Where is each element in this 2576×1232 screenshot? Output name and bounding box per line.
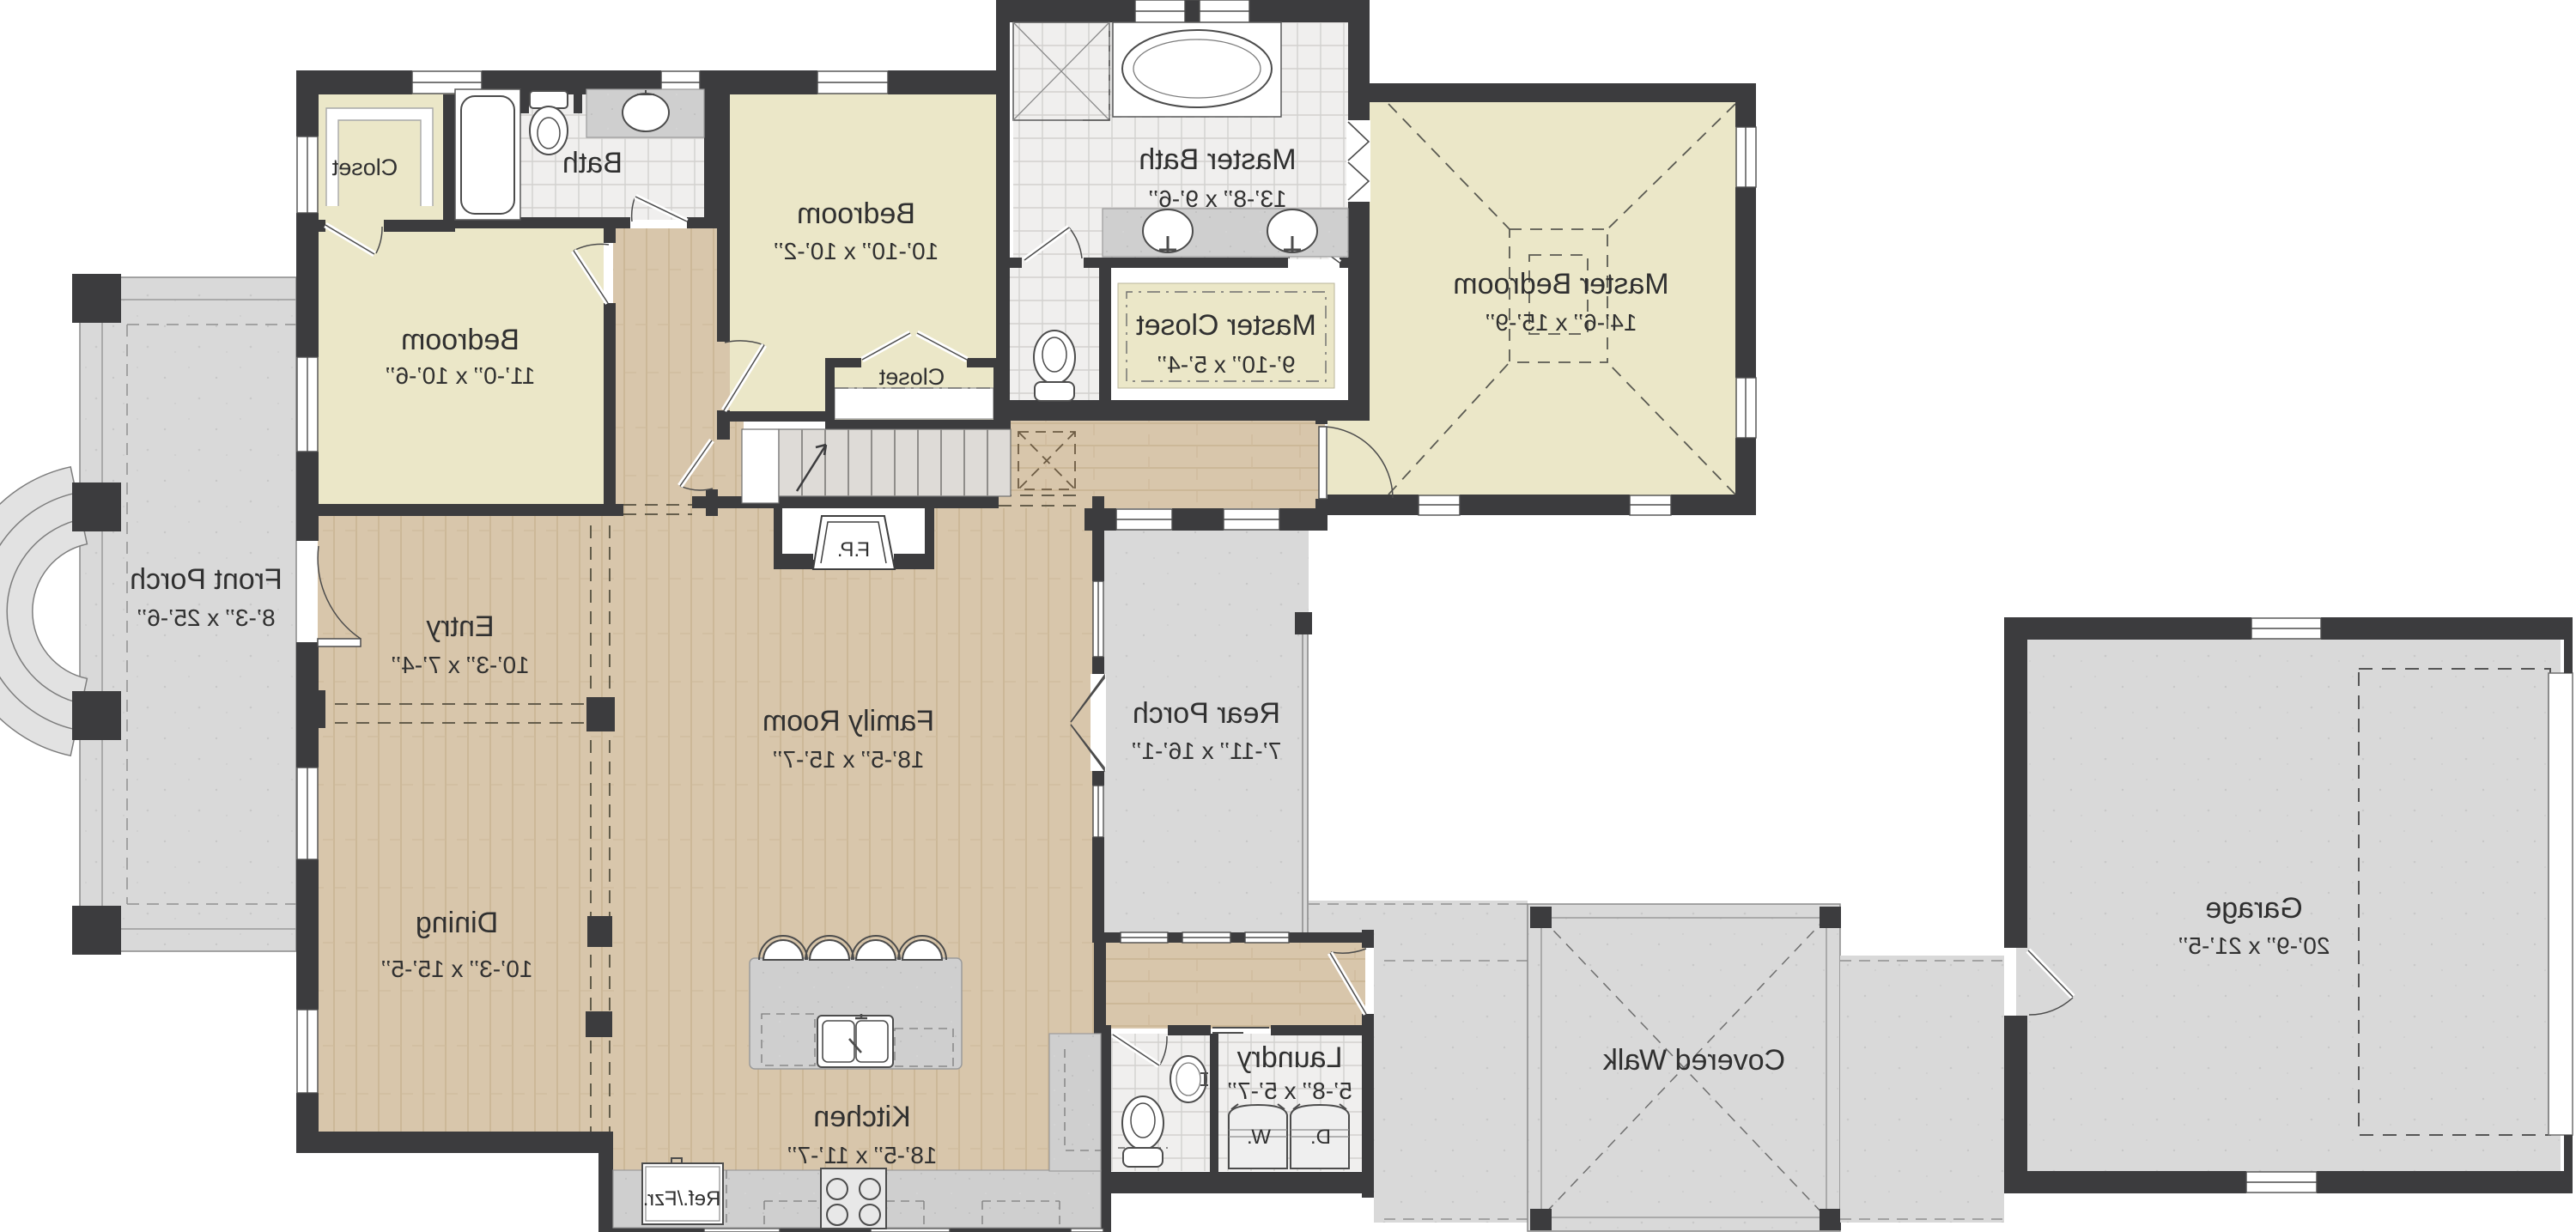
svg-text:Kitchen: Kitchen xyxy=(813,1101,910,1133)
svg-text:9’-10’’ x 5’-4’’: 9’-10’’ x 5’-4’’ xyxy=(1157,351,1295,378)
svg-text:13’-8’’ x 9’-6’’: 13’-8’’ x 9’-6’’ xyxy=(1148,185,1286,212)
svg-text:Closet: Closet xyxy=(878,364,945,390)
svg-text:Master Closet: Master Closet xyxy=(1136,309,1316,342)
svg-text:10’-3’’ x 7’-4’’: 10’-3’’ x 7’-4’’ xyxy=(391,652,529,678)
svg-text:11’-0’’ x 10’-6’’: 11’-0’’ x 10’-6’’ xyxy=(386,362,536,389)
svg-text:D.: D. xyxy=(1310,1126,1331,1149)
svg-text:20’-9’’ x 21’-5’’: 20’-9’’ x 21’-5’’ xyxy=(2178,932,2330,959)
svg-text:Master Bath: Master Bath xyxy=(1139,143,1296,176)
svg-text:W.: W. xyxy=(1247,1126,1271,1149)
svg-text:Front Porch: Front Porch xyxy=(130,563,283,596)
svg-text:Rear Porch: Rear Porch xyxy=(1133,697,1280,730)
svg-text:Bedroom: Bedroom xyxy=(797,197,915,230)
svg-text:Closet: Closet xyxy=(331,155,398,180)
svg-text:F.P.: F.P. xyxy=(837,538,870,561)
svg-text:18’-5’’ x 15’-7’’: 18’-5’’ x 15’-7’’ xyxy=(773,746,925,773)
svg-text:10’-3’’ x 15’-5’’: 10’-3’’ x 15’-5’’ xyxy=(381,956,533,982)
svg-text:7’-11’’ x 16’-1’’: 7’-11’’ x 16’-1’’ xyxy=(1132,737,1282,764)
svg-text:Master Bedroom: Master Bedroom xyxy=(1453,268,1668,300)
svg-text:5’-8’’ x 5’-7’’: 5’-8’’ x 5’-7’’ xyxy=(1227,1077,1352,1104)
svg-text:14’-6’’ x 15’-9’’: 14’-6’’ x 15’-9’’ xyxy=(1485,309,1637,336)
svg-text:Laundry: Laundry xyxy=(1237,1041,1343,1074)
svg-text:Bedroom: Bedroom xyxy=(401,324,519,356)
svg-text:Covered Walk: Covered Walk xyxy=(1602,1044,1785,1077)
svg-text:Entry: Entry xyxy=(426,610,494,643)
svg-text:Dining: Dining xyxy=(416,907,498,939)
svg-text:Bath: Bath xyxy=(562,147,623,179)
svg-text:8’-3’’ x 25’-6’’: 8’-3’’ x 25’-6’’ xyxy=(137,604,275,631)
svg-text:Family Room: Family Room xyxy=(762,705,934,737)
svg-text:18’-5’’ x 11’-7’’: 18’-5’’ x 11’-7’’ xyxy=(787,1142,938,1168)
svg-text:Garage: Garage xyxy=(2205,892,2302,925)
svg-text:10’-10’’ x 10’-2’’: 10’-10’’ x 10’-2’’ xyxy=(774,238,939,264)
svg-text:Ref./Fzr.: Ref./Fzr. xyxy=(643,1187,721,1211)
